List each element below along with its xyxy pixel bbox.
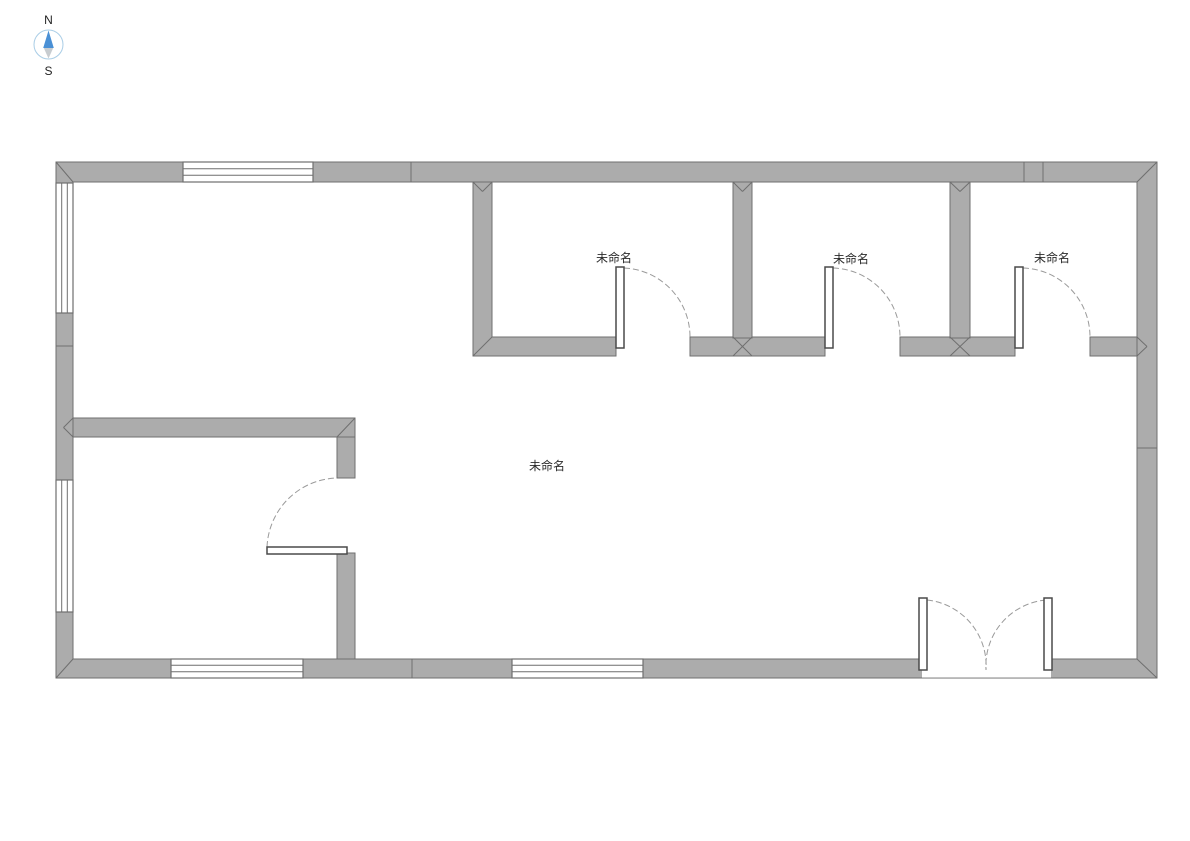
room-label-top-room-1[interactable]: 未命名 xyxy=(596,250,632,265)
floorplan-page: 未命名 未命名 未命名 未命名 N S xyxy=(0,0,1190,841)
lower-left-room-door[interactable] xyxy=(267,478,347,554)
interior-wall-L[interactable] xyxy=(473,182,616,356)
door-swing-arc xyxy=(267,478,337,547)
top-wall-window[interactable] xyxy=(183,162,313,182)
door-leaf-left xyxy=(919,598,927,670)
door-swing-arc xyxy=(833,268,900,337)
door-leaf xyxy=(1015,267,1023,348)
left-wall-window-lower[interactable] xyxy=(56,480,73,612)
room-label-top-room-2[interactable]: 未命名 xyxy=(833,251,869,266)
interior-wall-segment[interactable] xyxy=(690,337,825,356)
floorplan-canvas: 未命名 未命名 未命名 未命名 N S xyxy=(0,0,1190,841)
compass-south-label: S xyxy=(44,64,52,78)
top-room-1-door[interactable] xyxy=(616,267,690,348)
door-leaf xyxy=(616,267,624,348)
lower-room-right-wall-upper[interactable] xyxy=(337,437,355,478)
compass-north-label: N xyxy=(44,13,53,27)
interior-wall-segment[interactable] xyxy=(1090,337,1137,356)
compass-rose: N S xyxy=(34,13,63,78)
top-room-2-door[interactable] xyxy=(825,267,900,348)
lower-room-top-wall[interactable] xyxy=(73,418,355,437)
lower-room-right-wall-lower[interactable] xyxy=(337,553,355,659)
door-leaf xyxy=(267,547,347,554)
door-swing-arc xyxy=(1023,268,1090,337)
partition-room1-2[interactable] xyxy=(733,182,752,338)
bottom-wall-window-left[interactable] xyxy=(171,659,303,678)
interior-wall-segment[interactable] xyxy=(900,337,1015,356)
door-swing-arc xyxy=(624,268,690,337)
room-labels: 未命名 未命名 未命名 未命名 xyxy=(529,250,1070,473)
top-room-3-door[interactable] xyxy=(1015,267,1090,348)
bottom-wall-window-middle[interactable] xyxy=(512,659,643,678)
room-label-top-room-3[interactable]: 未命名 xyxy=(1034,250,1070,265)
partition-room2-3[interactable] xyxy=(950,182,970,338)
left-wall-window-upper[interactable] xyxy=(56,183,73,313)
room-label-main-hall[interactable]: 未命名 xyxy=(529,458,565,473)
door-leaf xyxy=(825,267,833,348)
door-leaf-right xyxy=(1044,598,1052,670)
main-entrance-double-door[interactable] xyxy=(919,598,1052,678)
